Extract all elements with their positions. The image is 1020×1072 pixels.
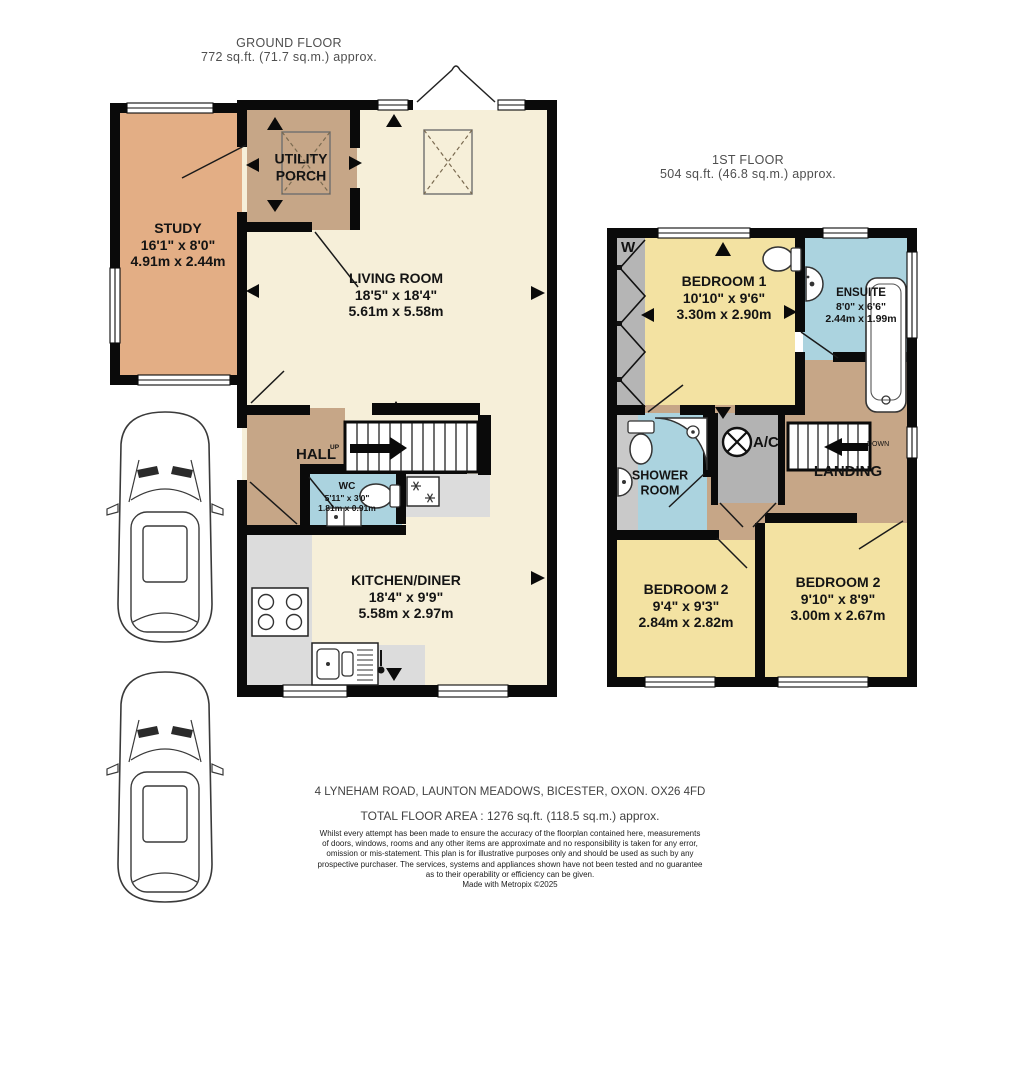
floorplan-page: GROUND FLOOR 772 sq.ft. (71.7 sq.m.) app… — [0, 0, 1020, 1072]
driveway-cars — [107, 412, 223, 902]
room-name: ENSUITE — [825, 287, 896, 301]
room-label-kitchen-diner: KITCHEN/DINER 18'4" x 9'9" 5.58m x 2.97m — [351, 572, 461, 622]
room-dims-imperial: 10'10" x 9'6" — [677, 290, 772, 307]
room-dims-metric: 1.81m x 0.91m — [318, 503, 376, 513]
room-name: LIVING ROOM — [349, 270, 444, 287]
room-label-utility-porch: UTILITY PORCH — [256, 150, 346, 183]
shower-toilet-icon — [628, 421, 654, 464]
disclaimer-line: of doors, windows, rooms and any other i… — [318, 839, 703, 849]
room-name: BEDROOM 2 — [639, 581, 734, 598]
floor-area: 504 sq.ft. (46.8 sq.m.) approx. — [660, 167, 836, 181]
room-name: UTILITY PORCH — [256, 150, 346, 183]
room-label-ac: A/C — [753, 434, 779, 451]
ground-floor-title: GROUND FLOOR 772 sq.ft. (71.7 sq.m.) app… — [201, 36, 377, 64]
room-label-bedroom2-right: BEDROOM 2 9'10" x 8'9" 3.00m x 2.67m — [791, 574, 886, 624]
room-label-wc: WC 5'11" x 3'0" 1.81m x 0.91m — [318, 481, 376, 513]
disclaimer: Whilst every attempt has been made to en… — [318, 829, 703, 890]
wardrobe-label: W — [621, 239, 635, 256]
room-name: KITCHEN/DINER — [351, 572, 461, 589]
room-dims-imperial: 9'4" x 9'3" — [639, 598, 734, 615]
stairs-down-label: DOWN — [867, 441, 889, 448]
room-label-shower-room: SHOWER ROOM — [623, 468, 697, 498]
disclaimer-line: as to their operability or efficiency ca… — [318, 870, 703, 880]
room-dims-imperial: 18'4" x 9'9" — [351, 589, 461, 606]
ac-symbol-icon — [723, 428, 751, 456]
car-top-view — [107, 412, 223, 642]
floor-title: 1ST FLOOR — [660, 153, 836, 167]
room-label-living-room: LIVING ROOM 18'5" x 18'4" 5.61m x 5.58m — [349, 270, 444, 320]
floor-title: GROUND FLOOR — [201, 36, 377, 50]
room-dims-metric: 2.44m x 1.99m — [825, 313, 896, 325]
room-dims-imperial: 5'11" x 3'0" — [318, 493, 376, 503]
ensuite-toilet-icon — [763, 247, 801, 271]
stairs-up-label: UP — [330, 444, 339, 451]
room-label-study: STUDY 16'1" x 8'0" 4.91m x 2.44m — [131, 220, 226, 270]
room-dims-metric: 3.30m x 2.90m — [677, 306, 772, 323]
credit-line: Made with Metropix ©2025 — [318, 880, 703, 890]
room-dims-metric: 2.84m x 2.82m — [639, 614, 734, 631]
room-name: BEDROOM 1 — [677, 273, 772, 290]
room-name: WC — [318, 481, 376, 493]
disclaimer-line: Whilst every attempt has been made to en… — [318, 829, 703, 839]
room-dims-imperial: 9'10" x 8'9" — [791, 591, 886, 608]
room-dims-metric: 4.91m x 2.44m — [131, 253, 226, 270]
sink-unit-icon — [312, 643, 385, 685]
room-dims-metric: 3.00m x 2.67m — [791, 607, 886, 624]
total-floor-area: TOTAL FLOOR AREA : 1276 sq.ft. (118.5 sq… — [360, 809, 659, 823]
room-label-landing: LANDING — [814, 463, 882, 481]
disclaimer-line: prospective purchaser. The services, sys… — [318, 860, 703, 870]
room-label-bedroom2-left: BEDROOM 2 9'4" x 9'3" 2.84m x 2.82m — [639, 581, 734, 631]
first-floor-title: 1ST FLOOR 504 sq.ft. (46.8 sq.m.) approx… — [660, 153, 836, 181]
room-dims-imperial: 8'0" x 6'6" — [825, 300, 896, 312]
room-label-ensuite: ENSUITE 8'0" x 6'6" 2.44m x 1.99m — [825, 287, 896, 325]
room-label-bedroom1: BEDROOM 1 10'10" x 9'6" 3.30m x 2.90m — [677, 273, 772, 323]
property-address: 4 LYNEHAM ROAD, LAUNTON MEADOWS, BICESTE… — [315, 786, 706, 798]
disclaimer-line: omission or mis-statement. This plan is … — [318, 849, 703, 859]
ac-cupboard-area — [718, 413, 778, 503]
floor-area: 772 sq.ft. (71.7 sq.m.) approx. — [201, 50, 377, 64]
hob-icon — [252, 588, 308, 636]
french-doors — [417, 66, 495, 102]
room-name: SHOWER ROOM — [623, 468, 697, 498]
room-dims-imperial: 16'1" x 8'0" — [131, 237, 226, 254]
room-dims-metric: 5.61m x 5.58m — [349, 303, 444, 320]
floorplan-graphics — [0, 0, 1020, 1072]
room-name: BEDROOM 2 — [791, 574, 886, 591]
room-dims-imperial: 18'5" x 18'4" — [349, 287, 444, 304]
room-name: LANDING — [814, 463, 882, 481]
room-name: STUDY — [131, 220, 226, 237]
fridge-freezer-icon — [407, 477, 439, 506]
staircase-up — [345, 422, 478, 472]
room-dims-metric: 5.58m x 2.97m — [351, 605, 461, 622]
car-top-view — [107, 672, 223, 902]
